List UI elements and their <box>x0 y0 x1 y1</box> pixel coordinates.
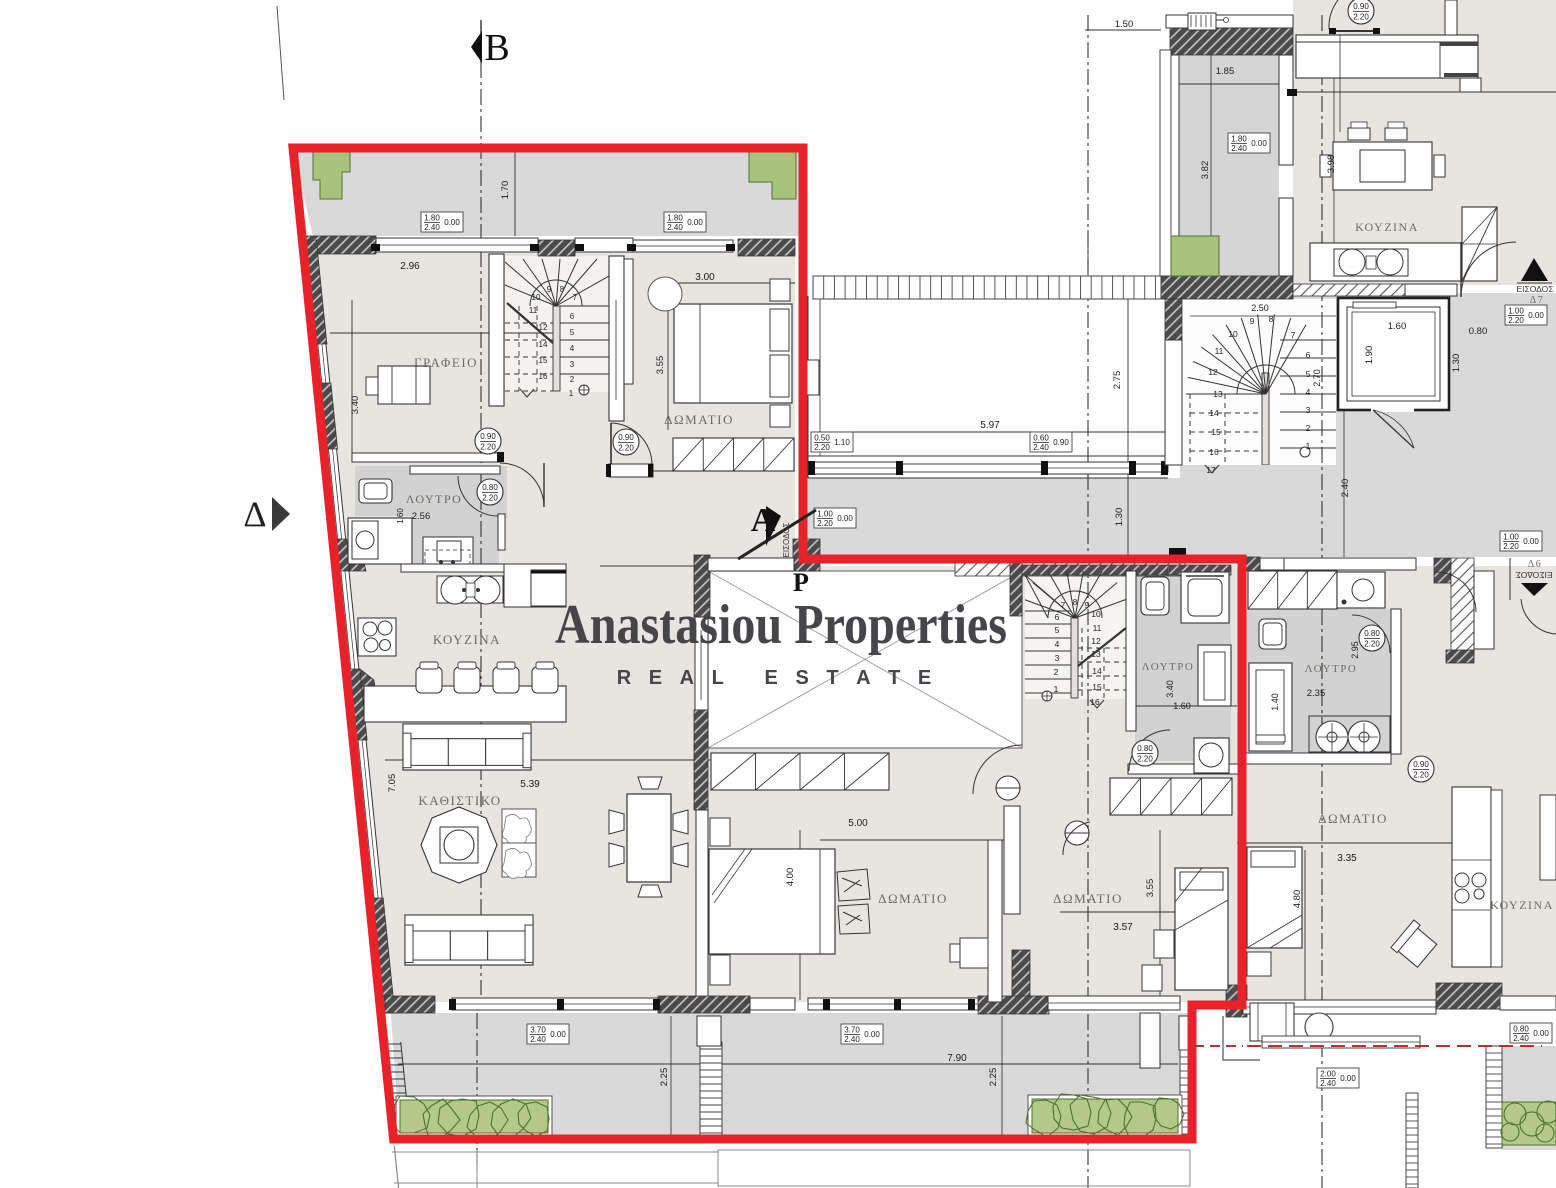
svg-text:3.55: 3.55 <box>655 356 666 375</box>
svg-text:8: 8 <box>1073 597 1078 607</box>
svg-text:1.30: 1.30 <box>1114 508 1125 527</box>
svg-text:0.00: 0.00 <box>1251 139 1267 148</box>
svg-text:ΛΟΥΤΡΟ: ΛΟΥΤΡΟ <box>406 492 463 506</box>
svg-text:0.00: 0.00 <box>1533 1029 1549 1038</box>
svg-text:ΔΩΜΑΤΙΟ: ΔΩΜΑΤΙΟ <box>878 891 948 906</box>
svg-text:0.00: 0.00 <box>1523 537 1539 546</box>
svg-text:15: 15 <box>1211 427 1221 437</box>
svg-text:2.56: 2.56 <box>412 511 431 522</box>
svg-text:Δ: Δ <box>243 494 266 534</box>
svg-text:1.80: 1.80 <box>667 214 683 223</box>
svg-text:3: 3 <box>1306 405 1311 415</box>
svg-text:3.35: 3.35 <box>1337 853 1357 864</box>
svg-text:3: 3 <box>1055 653 1060 663</box>
svg-text:ΕΙΣΟΔΟΣ: ΕΙΣΟΔΟΣ <box>1515 570 1552 580</box>
svg-text:2.75: 2.75 <box>1112 371 1123 390</box>
svg-text:3.00: 3.00 <box>695 272 715 283</box>
svg-text:9: 9 <box>1250 316 1255 326</box>
svg-text:2.40: 2.40 <box>424 223 440 232</box>
svg-text:9: 9 <box>1085 600 1090 610</box>
svg-text:1.00: 1.00 <box>1503 533 1519 542</box>
svg-text:2.20: 2.20 <box>480 443 496 452</box>
svg-text:0.80: 0.80 <box>1364 629 1380 638</box>
svg-text:2.40: 2.40 <box>667 223 683 232</box>
svg-text:6: 6 <box>570 312 575 321</box>
svg-text:10: 10 <box>1228 329 1238 339</box>
svg-text:2.40: 2.40 <box>1320 1079 1336 1088</box>
svg-text:ΚΑΘΙΣΤΙΚΟ: ΚΑΘΙΣΤΙΚΟ <box>418 793 501 808</box>
svg-text:2: 2 <box>1306 423 1311 433</box>
svg-text:4: 4 <box>570 344 575 353</box>
svg-text:8: 8 <box>560 285 565 294</box>
svg-text:3.40: 3.40 <box>350 396 361 415</box>
svg-text:2.40: 2.40 <box>844 1035 860 1044</box>
svg-text:0.90: 0.90 <box>1353 2 1369 11</box>
svg-text:11: 11 <box>1215 346 1224 356</box>
svg-text:2.40: 2.40 <box>1513 1034 1529 1043</box>
svg-text:7.05: 7.05 <box>387 774 398 793</box>
svg-text:2: 2 <box>1054 667 1059 677</box>
svg-text:2.20: 2.20 <box>1353 13 1369 22</box>
svg-text:1.60: 1.60 <box>396 508 405 524</box>
svg-text:1.00: 1.00 <box>1508 307 1524 316</box>
svg-text:9: 9 <box>547 285 552 294</box>
svg-text:ΔΩΜΑΤΙΟ: ΔΩΜΑΤΙΟ <box>1053 891 1123 906</box>
svg-text:2.96: 2.96 <box>400 261 420 272</box>
svg-text:12: 12 <box>539 323 548 332</box>
svg-text:ΚΟΥΖΙΝΑ: ΚΟΥΖΙΝΑ <box>433 632 501 647</box>
svg-text:1: 1 <box>1054 684 1059 694</box>
svg-text:0.90: 0.90 <box>618 433 634 442</box>
svg-text:2.40: 2.40 <box>1340 479 1351 498</box>
svg-text:1: 1 <box>569 389 574 398</box>
svg-text:0.00: 0.00 <box>864 1030 880 1039</box>
svg-text:3: 3 <box>570 360 575 369</box>
svg-text:3.70: 3.70 <box>530 1026 546 1035</box>
svg-text:14: 14 <box>539 340 548 349</box>
svg-text:ΚΟΥΖΙΝΑ: ΚΟΥΖΙΝΑ <box>1355 220 1419 234</box>
svg-text:2.20: 2.20 <box>1508 316 1524 325</box>
svg-text:1.60: 1.60 <box>1388 321 1407 332</box>
svg-text:0.90: 0.90 <box>1053 438 1069 447</box>
svg-text:11: 11 <box>1093 623 1102 633</box>
svg-text:ΕΙΣΟΔΟΣ: ΕΙΣΟΔΟΣ <box>782 522 791 557</box>
svg-text:1.85: 1.85 <box>1216 66 1235 77</box>
svg-text:4.80: 4.80 <box>1292 890 1303 909</box>
svg-text:10: 10 <box>1091 609 1101 619</box>
svg-text:Anastasiou Properties: Anastasiou Properties <box>555 594 1007 656</box>
svg-text:4.00: 4.00 <box>785 868 796 887</box>
svg-text:1.90: 1.90 <box>1364 346 1375 365</box>
svg-text:6: 6 <box>1055 612 1060 622</box>
svg-text:1.60: 1.60 <box>1173 701 1191 711</box>
svg-text:2.00: 2.00 <box>1320 1070 1336 1079</box>
svg-text:0.60: 0.60 <box>1033 434 1049 443</box>
svg-text:7: 7 <box>1291 330 1296 340</box>
svg-text:2.40: 2.40 <box>1231 144 1247 153</box>
svg-text:5.39: 5.39 <box>520 779 540 790</box>
svg-text:5: 5 <box>1055 625 1060 635</box>
svg-text:ΚΟΥΖΙΝΑ: ΚΟΥΖΙΝΑ <box>1490 898 1554 912</box>
svg-text:2.25: 2.25 <box>988 1068 999 1087</box>
svg-text:2.70: 2.70 <box>1312 369 1322 387</box>
svg-text:12: 12 <box>1208 367 1218 377</box>
svg-text:1.40: 1.40 <box>1270 693 1280 711</box>
svg-text:11: 11 <box>529 306 538 315</box>
svg-text:1.80: 1.80 <box>1231 135 1247 144</box>
svg-text:2.40: 2.40 <box>1033 443 1049 452</box>
svg-text:0.00: 0.00 <box>837 514 853 523</box>
svg-text:0.80: 0.80 <box>482 483 498 492</box>
svg-text:2.20: 2.20 <box>1413 771 1429 780</box>
svg-text:2.20: 2.20 <box>1503 542 1519 551</box>
svg-text:0.90: 0.90 <box>480 432 496 441</box>
svg-text:2.35: 2.35 <box>1307 688 1326 699</box>
svg-text:5.00: 5.00 <box>848 818 868 829</box>
svg-text:0.00: 0.00 <box>444 218 460 227</box>
svg-text:3.70: 3.70 <box>844 1026 860 1035</box>
svg-text:16: 16 <box>539 372 548 381</box>
svg-text:0.80: 0.80 <box>1137 744 1153 753</box>
svg-text:2.25: 2.25 <box>659 1068 670 1087</box>
svg-text:0.00: 0.00 <box>1528 311 1544 320</box>
svg-text:ΔΩΜΑΤΙΟ: ΔΩΜΑΤΙΟ <box>664 412 734 427</box>
svg-text:14: 14 <box>1209 408 1219 418</box>
svg-text:0.50: 0.50 <box>814 434 830 443</box>
svg-text:16: 16 <box>1209 447 1219 457</box>
svg-text:1.10: 1.10 <box>834 438 850 447</box>
svg-text:1.00: 1.00 <box>817 510 833 519</box>
svg-text:7: 7 <box>1061 600 1066 610</box>
svg-text:0.80: 0.80 <box>1513 1025 1529 1034</box>
svg-text:0.80: 0.80 <box>1469 326 1488 337</box>
svg-text:2.20: 2.20 <box>1137 755 1153 764</box>
svg-text:R E A L E S T A T E: R E A L E S T A T E <box>617 667 937 689</box>
svg-text:7: 7 <box>573 293 578 302</box>
svg-text:1.30: 1.30 <box>1451 354 1462 373</box>
svg-text:B: B <box>484 27 509 69</box>
svg-text:ΔΩΜΑΤΙΟ: ΔΩΜΑΤΙΟ <box>1318 811 1388 826</box>
svg-text:8: 8 <box>1269 314 1274 324</box>
svg-text:2.50: 2.50 <box>1251 303 1269 313</box>
svg-text:15: 15 <box>1092 682 1102 692</box>
svg-text:3.40: 3.40 <box>1165 680 1175 698</box>
svg-text:3.57: 3.57 <box>1113 922 1133 933</box>
svg-text:13: 13 <box>1091 649 1101 659</box>
svg-text:16: 16 <box>1090 697 1100 707</box>
svg-text:ΓΡΑΦΕΙΟ: ΓΡΑΦΕΙΟ <box>414 355 478 370</box>
svg-text:ΕΙΣΟΔΟΣ: ΕΙΣΟΔΟΣ <box>1516 284 1553 294</box>
svg-text:3.98: 3.98 <box>1326 155 1337 174</box>
svg-text:1.70: 1.70 <box>500 181 511 200</box>
svg-text:15: 15 <box>539 356 548 365</box>
svg-text:13: 13 <box>1213 389 1223 399</box>
svg-text:Δ6: Δ6 <box>1528 559 1542 570</box>
svg-text:1.80: 1.80 <box>424 214 440 223</box>
svg-text:2.20: 2.20 <box>618 444 634 453</box>
svg-text:0.00: 0.00 <box>1340 1074 1356 1083</box>
svg-text:ΛΟΥΤΡΟ: ΛΟΥΤΡΟ <box>1305 663 1358 675</box>
svg-text:1: 1 <box>1306 441 1311 451</box>
svg-text:ΛΟΥΤΡΟ: ΛΟΥΤΡΟ <box>1142 661 1195 673</box>
svg-text:3.82: 3.82 <box>1200 161 1211 180</box>
svg-text:12: 12 <box>1091 636 1101 646</box>
svg-text:7.90: 7.90 <box>947 1053 967 1064</box>
svg-text:0.00: 0.00 <box>687 218 703 227</box>
svg-text:6: 6 <box>1306 350 1311 360</box>
svg-text:4: 4 <box>1055 639 1060 649</box>
svg-text:2.40: 2.40 <box>530 1035 546 1044</box>
svg-text:P: P <box>793 568 809 597</box>
svg-text:5: 5 <box>570 328 575 337</box>
svg-text:2: 2 <box>570 375 575 384</box>
svg-text:2.20: 2.20 <box>482 494 498 503</box>
svg-text:2.20: 2.20 <box>817 519 833 528</box>
svg-text:4: 4 <box>1306 387 1311 397</box>
svg-text:Δ7: Δ7 <box>1530 295 1544 306</box>
svg-text:14: 14 <box>1092 666 1102 676</box>
svg-text:2.20: 2.20 <box>814 443 830 452</box>
svg-text:0.90: 0.90 <box>1413 760 1429 769</box>
svg-text:3.55: 3.55 <box>1145 879 1156 898</box>
svg-text:10: 10 <box>532 293 541 302</box>
svg-text:5.97: 5.97 <box>980 420 1000 431</box>
svg-text:2.20: 2.20 <box>1364 640 1380 649</box>
svg-text:5: 5 <box>1306 369 1311 379</box>
svg-text:2.95: 2.95 <box>1350 641 1360 659</box>
svg-text:1.50: 1.50 <box>1115 19 1134 30</box>
svg-text:17: 17 <box>1206 465 1216 475</box>
svg-text:0.00: 0.00 <box>550 1030 566 1039</box>
